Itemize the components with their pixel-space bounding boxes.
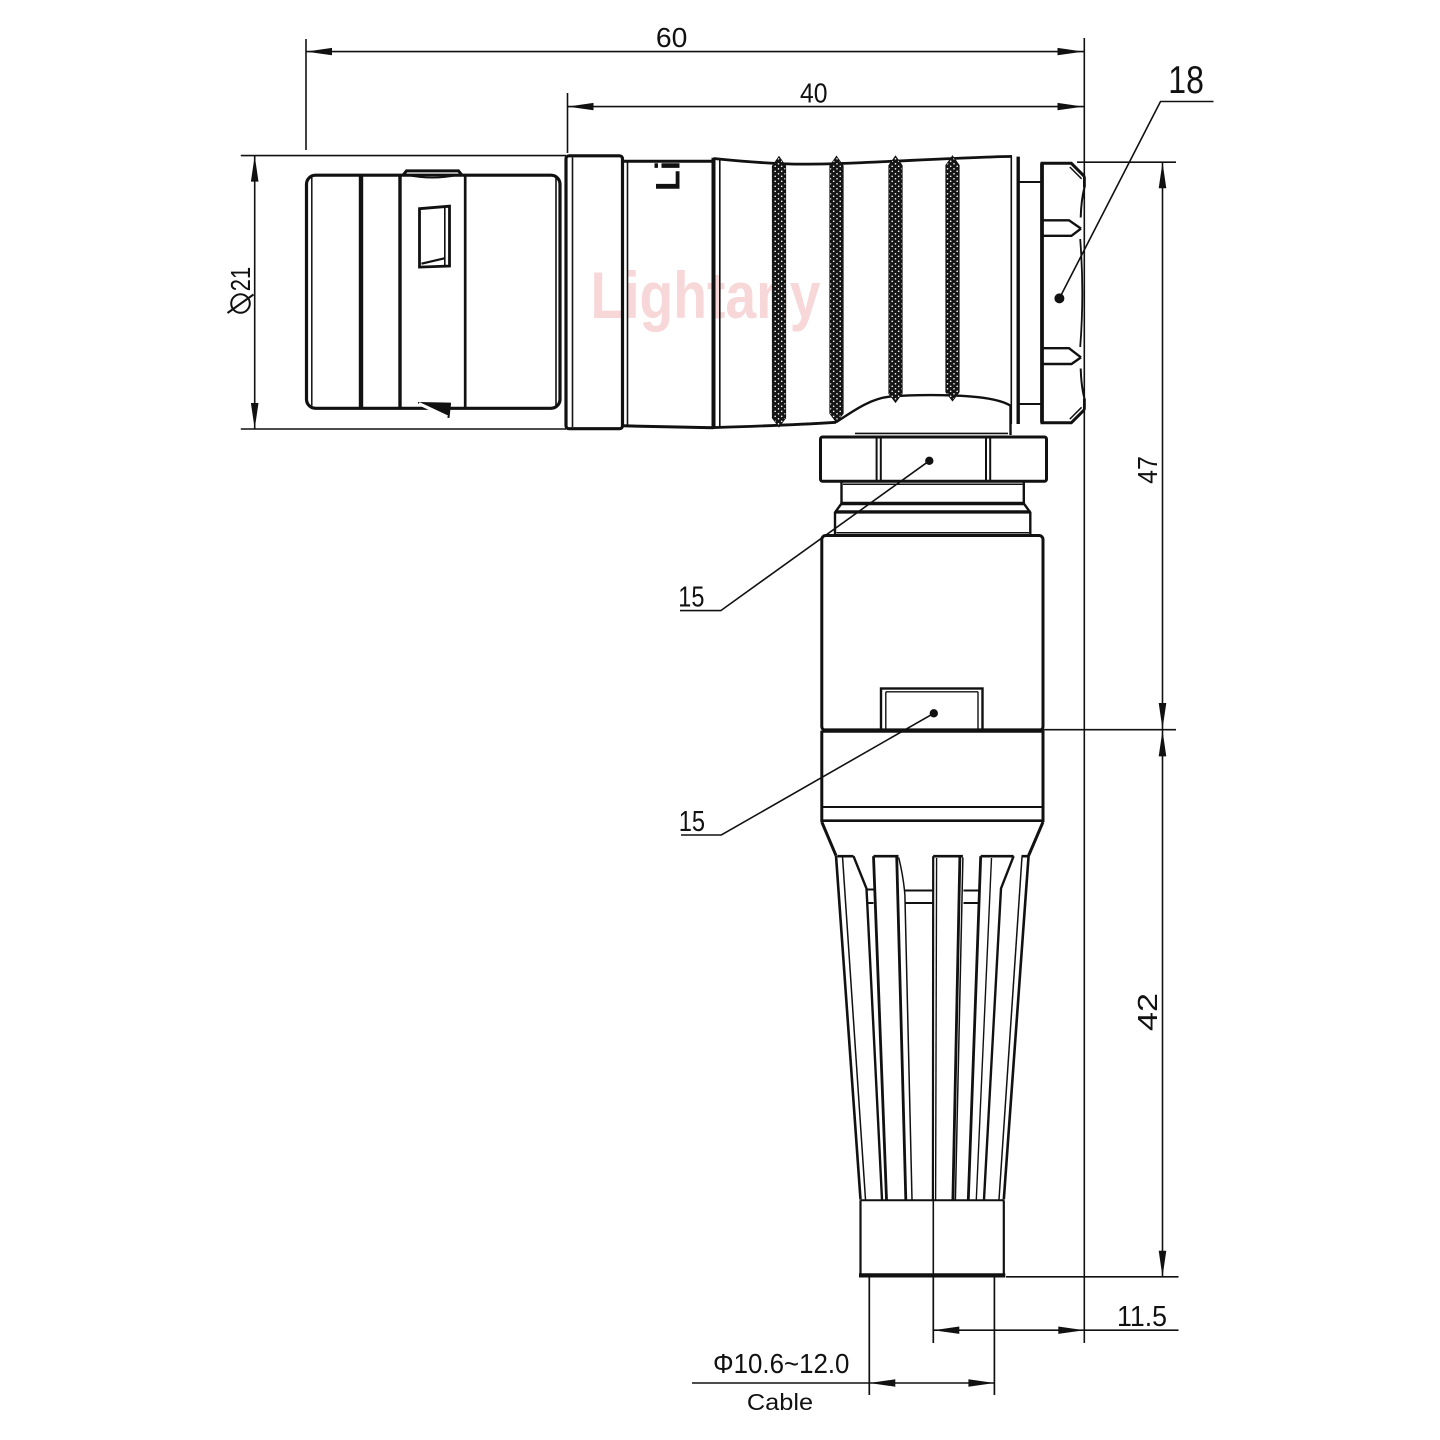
svg-text:60: 60 bbox=[656, 22, 688, 53]
svg-text:15: 15 bbox=[678, 582, 704, 614]
svg-text:Lightany: Lightany bbox=[650, 49, 688, 191]
svg-text:42: 42 bbox=[1132, 993, 1163, 1031]
svg-text:21: 21 bbox=[225, 267, 256, 291]
svg-text:15: 15 bbox=[679, 806, 705, 838]
svg-text:40: 40 bbox=[800, 78, 828, 109]
svg-text:Lightany: Lightany bbox=[591, 258, 821, 332]
svg-text:Φ10.6~12.0: Φ10.6~12.0 bbox=[713, 1348, 849, 1379]
svg-text:Cable: Cable bbox=[747, 1389, 813, 1415]
svg-text:47: 47 bbox=[1132, 456, 1163, 484]
svg-text:11.5: 11.5 bbox=[1117, 1301, 1167, 1333]
svg-text:18: 18 bbox=[1168, 59, 1204, 102]
